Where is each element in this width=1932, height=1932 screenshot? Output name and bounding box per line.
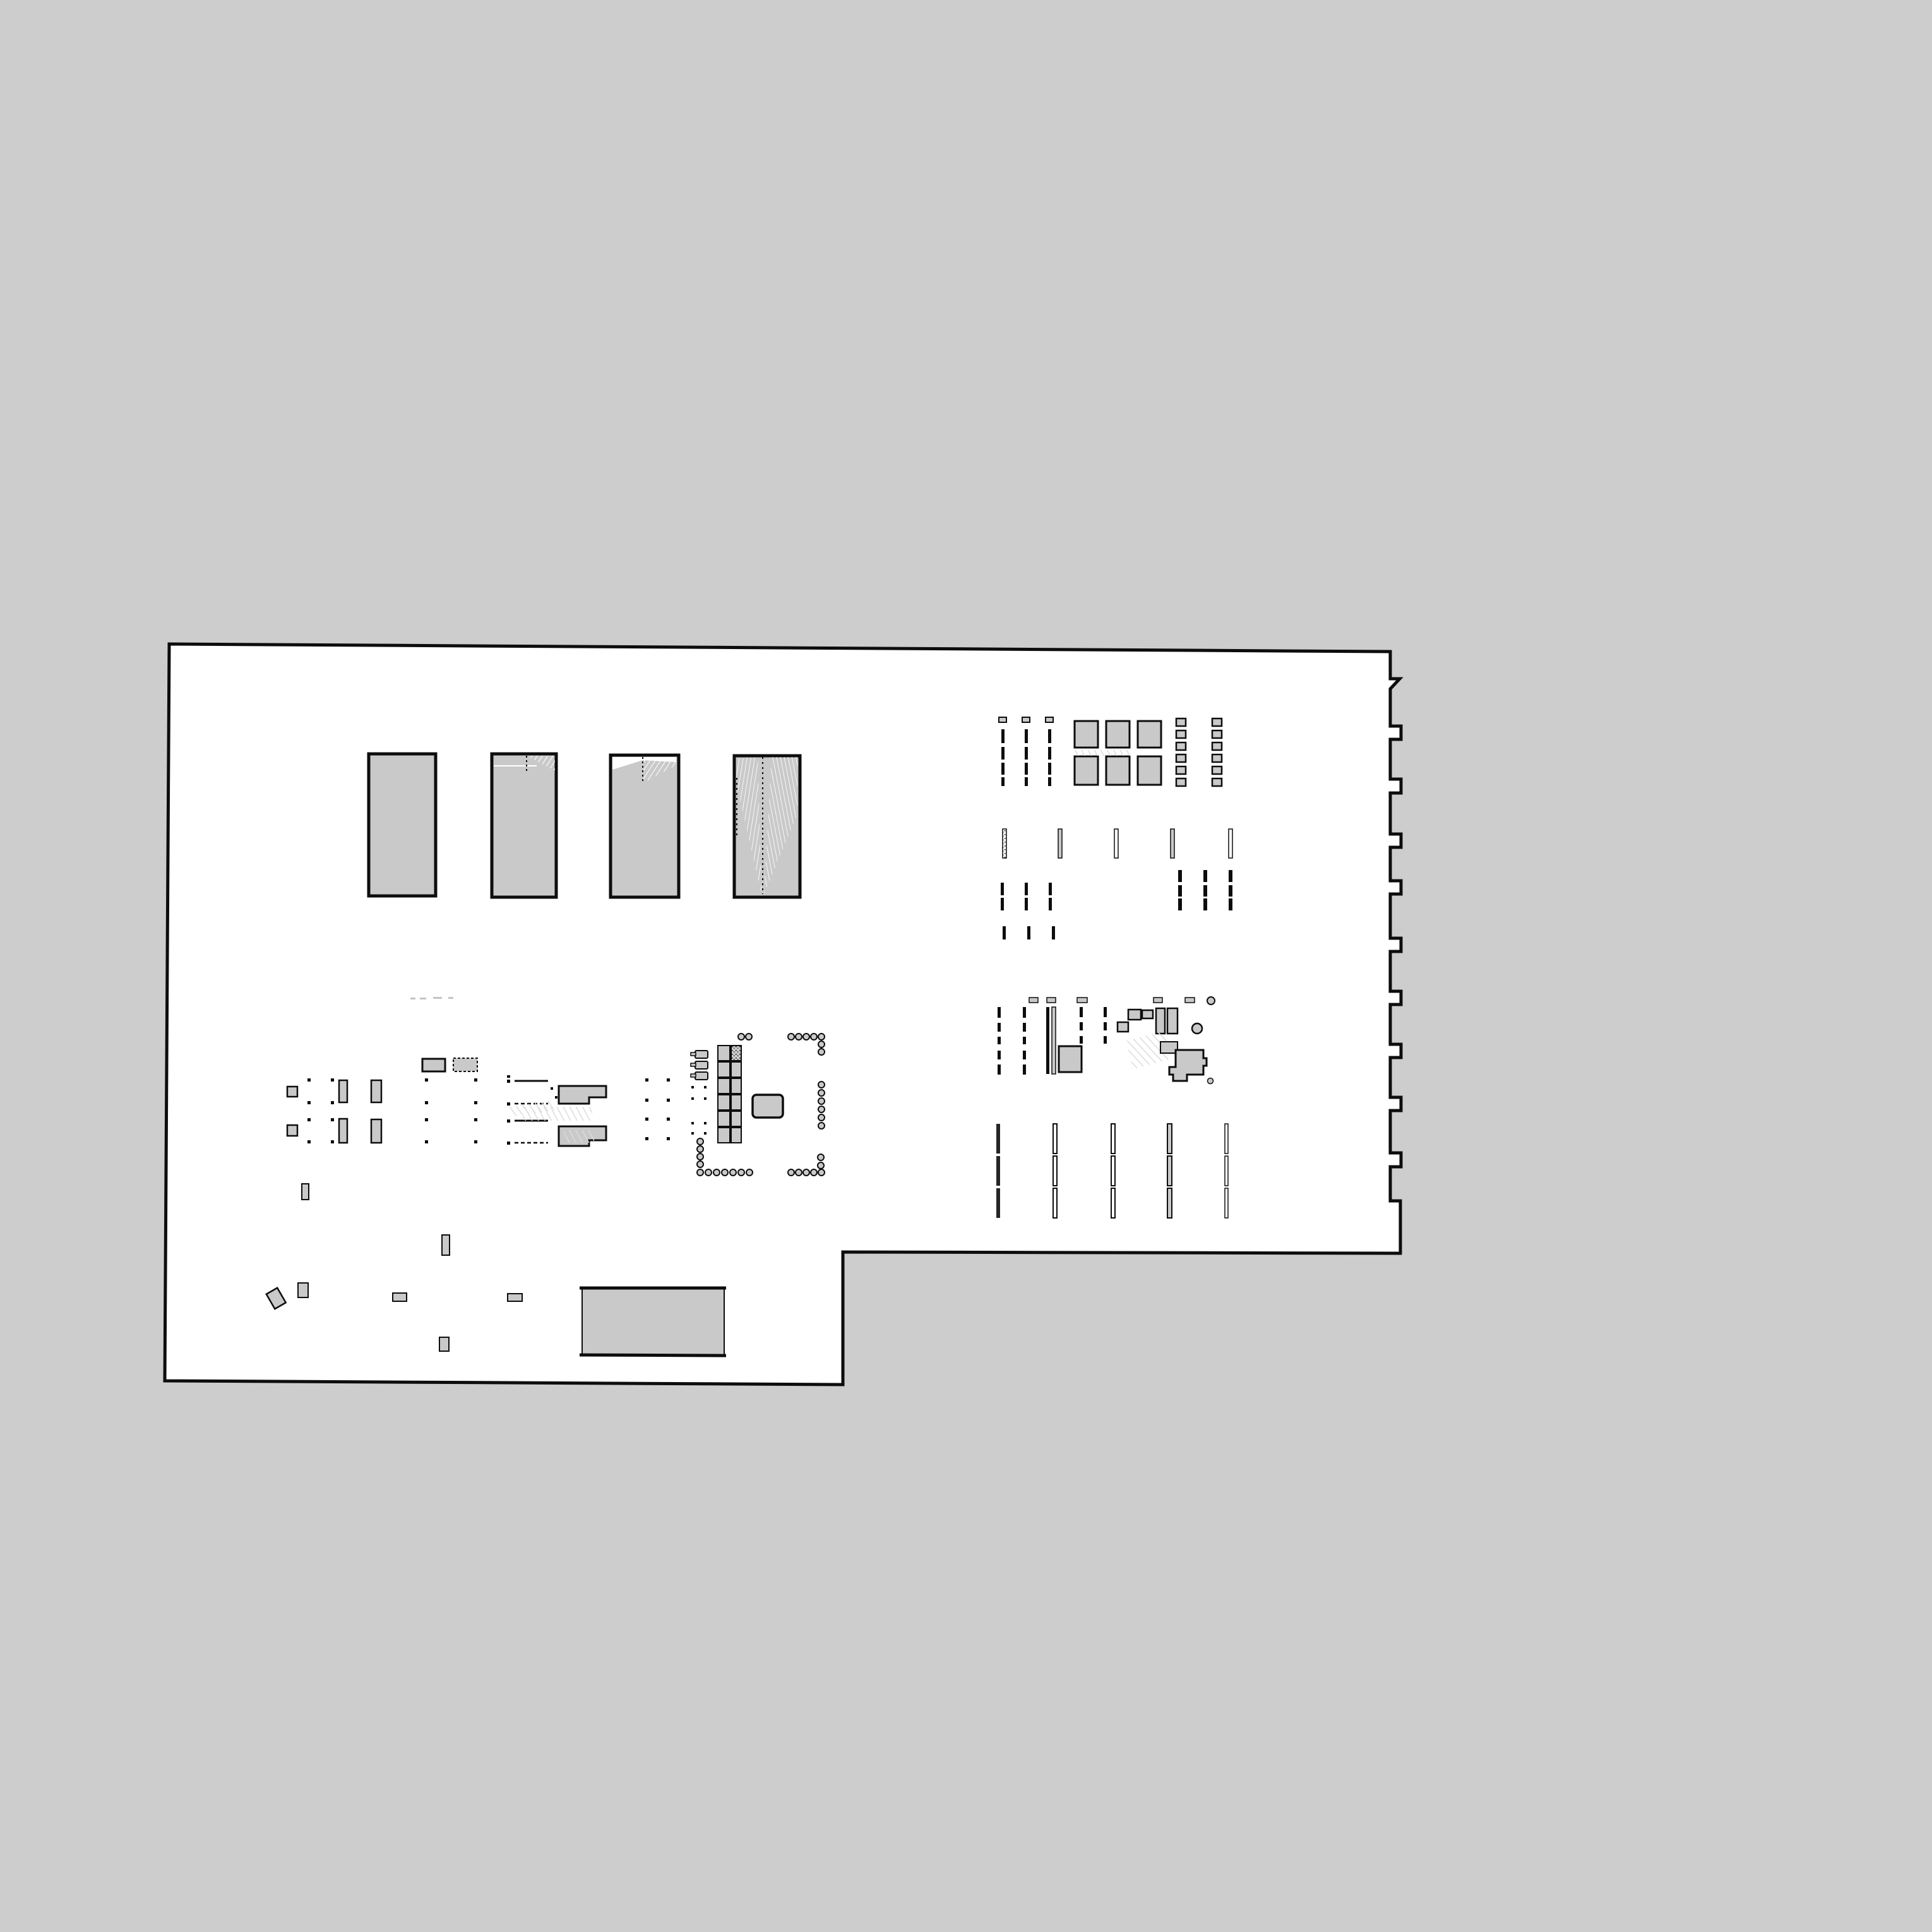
obstacle-box — [1128, 1010, 1141, 1020]
shelf-bar — [339, 1080, 347, 1102]
pillar-dot — [796, 1034, 802, 1040]
shelf-bar — [371, 1080, 381, 1102]
pillar-dot — [697, 1138, 703, 1145]
pallet-dash — [1203, 898, 1207, 910]
pillar-dot — [818, 1090, 825, 1096]
pallet-dash — [1023, 1007, 1026, 1018]
pillar-dot — [1208, 1078, 1213, 1084]
obstacle-box — [1118, 1022, 1128, 1032]
scan-dot — [507, 1142, 510, 1145]
scan-dot — [507, 1075, 510, 1078]
obstacle-box — [1142, 1010, 1153, 1018]
aisle-bar — [1167, 1156, 1172, 1186]
pallet-dash — [1052, 926, 1055, 939]
scan-dot — [474, 1078, 477, 1082]
scan-dot — [425, 1140, 428, 1143]
cart-body — [695, 1061, 708, 1069]
pallet-tick — [1022, 717, 1030, 722]
obstacle-bar — [442, 1235, 450, 1255]
pillar-dot — [788, 1169, 794, 1176]
shelf-bar — [371, 1119, 381, 1143]
pallet-dash — [1025, 763, 1028, 775]
pillar-dot — [803, 1169, 809, 1176]
scan-dot — [507, 1119, 510, 1123]
rack-cell — [731, 1111, 741, 1126]
scan-dot — [551, 1087, 553, 1090]
map-viewport — [0, 0, 1932, 1932]
staging-zone-edge — [580, 1355, 726, 1356]
pallet-dash — [1049, 883, 1052, 895]
shelf-bar — [339, 1119, 347, 1143]
aisle-bar — [1053, 1156, 1057, 1186]
pillar-dot — [697, 1154, 703, 1160]
aisle-bar — [996, 1156, 1000, 1186]
thin-divider — [1058, 829, 1062, 858]
scan-dot — [645, 1078, 648, 1082]
pillar-dot — [713, 1169, 720, 1176]
rack-upright — [1052, 1007, 1056, 1074]
shelf-bracket — [1212, 766, 1222, 774]
pillar-dot — [738, 1034, 744, 1040]
rack-cell — [718, 1095, 730, 1110]
rack-block-2 — [492, 754, 556, 897]
shelf-bracket — [1176, 754, 1186, 762]
scan-dot — [555, 1096, 558, 1099]
aisle-bar — [1225, 1188, 1228, 1218]
scan-dot — [667, 1078, 670, 1082]
obstacle-bar — [298, 1283, 308, 1297]
noise-streak — [523, 1107, 592, 1121]
scan-dot — [331, 1101, 334, 1104]
pallet-box — [1106, 756, 1130, 785]
noise-streak — [564, 1130, 594, 1143]
rack-cell — [718, 1078, 730, 1094]
pallet-dash — [1001, 777, 1005, 786]
shelf-bracket — [1176, 730, 1186, 738]
pallet-tick — [1047, 998, 1056, 1003]
pallet-dash — [1025, 883, 1028, 895]
pallet-dash — [1001, 883, 1004, 895]
pallet-dash — [1023, 1023, 1026, 1032]
pillar-dot — [697, 1146, 703, 1152]
pillar-dot — [818, 1154, 824, 1160]
pallet-dash — [998, 1064, 1001, 1075]
pallet-dash — [1001, 763, 1005, 775]
pallet-dash — [1178, 898, 1182, 910]
rack-cell — [718, 1046, 730, 1061]
shelf-bracket — [1212, 778, 1222, 786]
scan-dot — [474, 1118, 477, 1121]
pallet-dash — [1025, 898, 1028, 910]
pillar-dot — [818, 1114, 825, 1121]
pallet-dash — [1080, 1007, 1083, 1017]
pallet-dash — [1027, 926, 1030, 939]
pallet-tick — [1185, 998, 1195, 1003]
shelf-bracket — [1176, 719, 1186, 726]
pillar-dot — [818, 1034, 825, 1040]
pallet-tick — [1046, 717, 1053, 722]
pallet-dash — [1025, 777, 1028, 786]
scan-dot — [425, 1118, 428, 1121]
pallet-dash — [1025, 729, 1028, 743]
pallet-tick — [1077, 998, 1087, 1003]
pillar-dot — [746, 1034, 752, 1040]
pallet-dash — [1048, 763, 1051, 775]
pallet-dash — [1080, 1022, 1083, 1030]
aisle-bar — [1111, 1188, 1115, 1218]
scan-dot — [331, 1078, 334, 1082]
scan-dot — [507, 1080, 510, 1083]
occupancy-grid-map — [0, 0, 1932, 1932]
scan-dot — [307, 1118, 311, 1121]
pallet-dash — [998, 1007, 1001, 1018]
pillar-dot — [818, 1169, 825, 1176]
rack-cell — [718, 1128, 730, 1143]
pallet-dash — [1178, 885, 1182, 897]
shelf-bracket — [1212, 754, 1222, 762]
obstacle-box — [453, 1058, 477, 1071]
rack-upright — [1046, 1007, 1049, 1074]
pallet-dash — [1104, 1036, 1107, 1044]
shelf-bracket — [1176, 778, 1186, 786]
pallet-dash — [1049, 898, 1052, 910]
pallet-dash — [1001, 729, 1005, 743]
thin-divider — [1229, 829, 1232, 858]
shelf-bracket — [1212, 719, 1222, 726]
thin-divider — [1003, 829, 1006, 858]
obstacle-box — [422, 1059, 445, 1071]
pallet-dash — [1048, 747, 1051, 760]
obstacle-box — [287, 1087, 297, 1097]
rack-cell-speckle — [731, 1046, 741, 1061]
aisle-bar — [1053, 1188, 1057, 1218]
obstacle-bar — [439, 1337, 449, 1351]
aisle-bar — [1225, 1124, 1228, 1154]
obstacle-box — [287, 1125, 297, 1136]
thin-divider — [1171, 829, 1174, 858]
shelf-bracket — [1176, 766, 1186, 774]
staging-zone — [582, 1288, 724, 1355]
pallet-dash — [1104, 1022, 1107, 1030]
pillar-dot — [811, 1169, 817, 1176]
scan-dot — [691, 1122, 694, 1124]
scan-dot — [691, 1132, 694, 1135]
machine-box — [753, 1095, 783, 1118]
obstacle-bar — [1156, 1008, 1165, 1034]
pillar-dot — [818, 1123, 825, 1129]
obstacle-bar — [302, 1184, 309, 1200]
pallet-dash — [1203, 870, 1207, 882]
scan-dot — [474, 1140, 477, 1143]
cart-body — [695, 1051, 708, 1058]
pillar-dot — [803, 1034, 809, 1040]
scan-dot — [667, 1118, 670, 1121]
rack-cell — [718, 1062, 730, 1077]
pallet-dash — [1023, 1051, 1026, 1059]
pallet-dash — [998, 1037, 1001, 1044]
scan-dot — [425, 1078, 428, 1082]
pallet-dash — [1001, 898, 1004, 910]
noise-streak — [1073, 750, 1130, 756]
pallet-box — [1106, 721, 1130, 748]
cart-prong — [691, 1063, 696, 1066]
thin-divider — [1114, 829, 1118, 858]
pallet-dash — [1203, 885, 1207, 897]
rack-cell — [731, 1095, 741, 1110]
obstacle-bar — [1167, 1008, 1178, 1034]
aisle-bar — [1111, 1124, 1115, 1154]
rack-block-1 — [369, 754, 436, 896]
aisle-bar — [1167, 1124, 1172, 1154]
pillar-dot — [796, 1169, 802, 1176]
pillar-dot — [697, 1169, 703, 1176]
scan-dot — [667, 1099, 670, 1102]
obstacle-box — [393, 1293, 407, 1301]
scan-dot — [425, 1101, 428, 1104]
scan-dot — [645, 1137, 648, 1140]
aisle-bar — [1111, 1156, 1115, 1186]
scan-dot — [307, 1101, 311, 1104]
scan-dot — [667, 1137, 670, 1140]
pillar-dot — [738, 1169, 744, 1176]
pillar-dot — [788, 1034, 794, 1040]
faint-mark — [420, 998, 426, 999]
rack-cell — [731, 1128, 741, 1143]
pallet-dash — [1023, 1064, 1026, 1075]
faint-mark — [410, 998, 415, 999]
rack-cell — [731, 1078, 741, 1094]
scan-dot — [474, 1101, 477, 1104]
scan-dot — [331, 1140, 334, 1143]
aisle-bar — [996, 1124, 1000, 1154]
pillar-dot — [722, 1169, 728, 1176]
pillar-dot — [818, 1041, 825, 1047]
pallet-tick — [999, 717, 1006, 722]
pillar-dot — [697, 1161, 703, 1167]
pallet-box — [1075, 756, 1098, 785]
shelf-bracket — [1212, 742, 1222, 750]
aisle-bar — [1053, 1124, 1057, 1154]
cart-prong — [691, 1074, 696, 1077]
pallet-dash — [1229, 898, 1232, 910]
pallet-dash — [1229, 885, 1232, 897]
pallet-box — [1075, 721, 1098, 748]
scan-dot — [331, 1118, 334, 1121]
faint-mark — [448, 997, 453, 999]
pallet-dash — [998, 1051, 1001, 1059]
scan-dot — [307, 1140, 311, 1143]
pillar-dot — [818, 1049, 825, 1055]
scan-dot — [507, 1102, 510, 1106]
pallet-dash — [1025, 747, 1028, 760]
pillar-dot — [746, 1169, 753, 1176]
aisle-bar — [1225, 1156, 1228, 1186]
scan-dot — [704, 1132, 707, 1135]
aisle-bar — [996, 1188, 1000, 1218]
pillar-dot — [818, 1098, 825, 1104]
pillar-dot — [705, 1169, 712, 1176]
cart-prong — [691, 1052, 696, 1056]
scan-dot — [691, 1097, 694, 1100]
pallet-dash — [1104, 1007, 1107, 1017]
scan-dot — [704, 1086, 707, 1088]
rack-cell — [718, 1111, 730, 1126]
pallet-dash — [1001, 747, 1005, 760]
pallet-dash — [998, 1023, 1001, 1032]
pallet-dash — [1080, 1036, 1083, 1044]
pillar-dot — [1207, 997, 1215, 1005]
pillar-dot — [818, 1106, 825, 1112]
pallet-dash — [1178, 870, 1182, 882]
scan-dot — [645, 1099, 648, 1102]
scan-dot — [704, 1097, 707, 1100]
pallet-dash — [1003, 926, 1006, 939]
obstacle-box — [508, 1294, 522, 1301]
scan-dot — [307, 1078, 311, 1082]
obstacle-box — [1059, 1046, 1082, 1072]
scan-dot — [691, 1086, 694, 1088]
scan-dot — [645, 1118, 648, 1121]
pillar-dot — [730, 1169, 736, 1176]
pillar-dot — [811, 1034, 817, 1040]
pallet-dash — [1229, 870, 1232, 882]
aisle-bar — [1167, 1188, 1172, 1218]
scan-dot — [704, 1122, 707, 1124]
pallet-tick — [1154, 998, 1162, 1003]
pillar-dot — [818, 1082, 825, 1088]
pallet-box — [1138, 721, 1161, 748]
pallet-box — [1138, 756, 1161, 785]
cart-body — [695, 1072, 708, 1080]
pallet-tick — [1029, 998, 1038, 1003]
pallet-dash — [1023, 1037, 1026, 1044]
shelf-bracket — [1212, 730, 1222, 738]
pallet-dash — [1048, 777, 1051, 786]
rack-cell — [731, 1062, 741, 1077]
pillar-circle — [1192, 1023, 1202, 1034]
faint-mark — [433, 997, 442, 999]
pallet-dash — [1048, 729, 1051, 743]
pillar-dot — [818, 1162, 824, 1169]
shelf-bracket — [1176, 742, 1186, 750]
